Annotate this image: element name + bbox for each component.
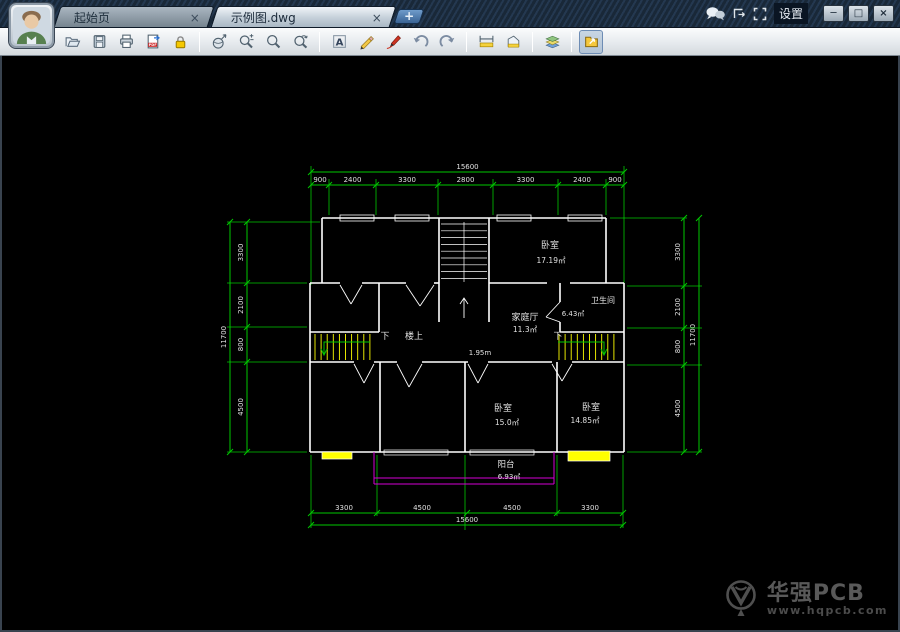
svg-text:900: 900 — [608, 176, 621, 184]
titlebar-controls: 设置 ─ □ × — [705, 3, 894, 24]
svg-text:3300: 3300 — [674, 243, 682, 261]
export-pdf-button[interactable]: PDF — [141, 30, 165, 54]
open-drawing-icon — [583, 33, 600, 50]
tab-drawing[interactable]: 示例图.dwg × — [210, 6, 396, 28]
svg-text:3300: 3300 — [398, 176, 416, 184]
export-pdf-icon: PDF — [145, 33, 162, 50]
measure-length-icon — [478, 33, 495, 50]
toolbar-separator — [466, 32, 467, 52]
svg-text:800: 800 — [237, 338, 245, 351]
close-button[interactable]: × — [873, 5, 894, 22]
toolbar-separator — [199, 32, 200, 52]
svg-text:3300: 3300 — [335, 504, 353, 512]
measure-length-button[interactable] — [474, 30, 498, 54]
zoom-previous-icon — [292, 33, 309, 50]
floor-plan-geometry: 1560090024003300280033002400900330045004… — [220, 163, 702, 530]
zoom-window-icon — [265, 33, 282, 50]
window-sill-right — [568, 451, 610, 461]
tab-start-page[interactable]: 起始页 × — [53, 6, 214, 28]
watermark-brand: 华强PCB — [767, 582, 888, 605]
svg-text:2400: 2400 — [344, 176, 362, 184]
redo-icon — [439, 33, 456, 50]
svg-text:800: 800 — [674, 340, 682, 353]
room-bedroom3-name: 卧室 — [582, 401, 600, 413]
room-balcony-name: 阳台 — [497, 459, 514, 470]
drawing-canvas[interactable]: 1560090024003300280033002400900330045004… — [0, 56, 900, 632]
brush-markup-button[interactable] — [381, 30, 405, 54]
stairwell-arrow — [460, 298, 468, 318]
lock-button[interactable] — [168, 30, 192, 54]
open-icon — [64, 33, 81, 50]
windows-and-sills — [322, 215, 610, 461]
minimize-button[interactable]: ─ — [823, 5, 844, 22]
svg-text:2100: 2100 — [237, 296, 245, 314]
svg-text:4500: 4500 — [674, 400, 682, 418]
svg-text:11700: 11700 — [689, 324, 697, 346]
print-icon — [118, 33, 135, 50]
tab-drawing-close-icon[interactable]: × — [372, 11, 382, 23]
stair-down-left-label: 下 — [380, 332, 389, 342]
watermark-url: www.hqpcb.com — [767, 605, 888, 617]
pencil-markup-button[interactable] — [354, 30, 378, 54]
window-sill-left — [322, 452, 352, 459]
zoom-in-out-icon — [238, 33, 255, 50]
toolbar-separator — [532, 32, 533, 52]
settings-button[interactable]: 设置 — [774, 3, 808, 24]
title-bar: 起始页 × 示例图.dwg × + — [0, 0, 900, 28]
svg-text:4500: 4500 — [503, 504, 521, 512]
open-drawing-button-active[interactable] — [579, 30, 603, 54]
measure-area-button[interactable] — [501, 30, 525, 54]
room-labels: 卧室 17.19㎡ 卫生间 6.43㎡ 家庭厅 11.3㎡ 卧室 15.0㎡ 卧… — [380, 239, 615, 481]
tab-start-page-label: 起始页 — [74, 9, 110, 26]
avatar-person-icon — [13, 7, 50, 44]
room-familyhall-area: 11.3㎡ — [513, 325, 538, 334]
tab-start-page-close-icon[interactable]: × — [190, 11, 200, 23]
app-window: 起始页 × 示例图.dwg × + — [0, 0, 900, 632]
room-bathroom-name: 卫生间 — [591, 295, 615, 305]
layers-button[interactable] — [540, 30, 564, 54]
window-buttons: ─ □ × — [823, 5, 894, 22]
room-bedroom3-area: 14.85㎡ — [571, 416, 600, 425]
svg-text:3300: 3300 — [517, 176, 535, 184]
measure-area-icon — [505, 33, 522, 50]
room-balcony-area: 6.93㎡ — [498, 473, 521, 481]
stair-upstairs-label: 楼上 — [405, 330, 423, 342]
room-bedroom2-area: 15.0㎡ — [495, 418, 520, 427]
toolbar: PDF A — [0, 28, 900, 56]
zoom-previous-button[interactable] — [288, 30, 312, 54]
svg-text:11700: 11700 — [220, 326, 228, 348]
save-button[interactable] — [87, 30, 111, 54]
svg-text:3300: 3300 — [581, 504, 599, 512]
svg-text:A: A — [335, 37, 343, 48]
room-bathroom-area: 6.43㎡ — [562, 310, 585, 318]
zoom-window-button[interactable] — [261, 30, 285, 54]
room-bedroom2-name: 卧室 — [494, 402, 512, 414]
text-annotation-button[interactable]: A — [327, 30, 351, 54]
pencil-icon — [358, 33, 375, 50]
svg-text:2100: 2100 — [674, 298, 682, 316]
svg-text:3300: 3300 — [237, 244, 245, 262]
svg-text:900: 900 — [313, 176, 326, 184]
fullscreen-icon[interactable] — [753, 7, 767, 21]
redo-button[interactable] — [435, 30, 459, 54]
brush-icon — [385, 33, 402, 50]
zoom-in-out-button[interactable] — [234, 30, 258, 54]
room-familyhall-name: 家庭厅 — [511, 311, 538, 323]
text-annotation-icon: A — [331, 33, 348, 50]
new-tab-button[interactable]: + — [394, 9, 425, 24]
maximize-button[interactable]: □ — [848, 5, 869, 22]
tab-strip: 起始页 × 示例图.dwg × + — [57, 4, 422, 28]
popup-window-icon[interactable] — [733, 7, 746, 20]
print-button[interactable] — [114, 30, 138, 54]
svg-text:15600: 15600 — [456, 516, 478, 524]
undo-button[interactable] — [408, 30, 432, 54]
toolbar-separator — [571, 32, 572, 52]
lock-icon — [172, 33, 189, 50]
chat-icon[interactable] — [705, 6, 726, 21]
user-avatar-button[interactable] — [9, 3, 54, 48]
watermark: 华强PCB www.hqpcb.com — [722, 578, 888, 620]
save-icon — [91, 33, 108, 50]
floor-plan: 1560090024003300280033002400900330045004… — [2, 56, 900, 632]
zoom-extents-button[interactable] — [207, 30, 231, 54]
watermark-logo-icon — [722, 578, 760, 620]
svg-text:2400: 2400 — [573, 176, 591, 184]
undo-icon — [412, 33, 429, 50]
layers-icon — [544, 33, 561, 50]
zoom-extents-icon — [211, 33, 228, 50]
svg-text:2800: 2800 — [457, 176, 475, 184]
room-bedroom1-area: 17.19㎡ — [537, 256, 566, 265]
open-button[interactable] — [60, 30, 84, 54]
tab-drawing-label: 示例图.dwg — [231, 9, 296, 26]
svg-text:15600: 15600 — [456, 163, 478, 171]
svg-text:4500: 4500 — [237, 398, 245, 416]
toolbar-separator — [319, 32, 320, 52]
stair-down-right-label: 下 — [553, 332, 562, 342]
svg-text:4500: 4500 — [413, 504, 431, 512]
svg-text:PDF: PDF — [148, 43, 157, 47]
room-bedroom1-name: 卧室 — [541, 239, 559, 251]
width-annotation: 1.95m — [469, 349, 492, 357]
